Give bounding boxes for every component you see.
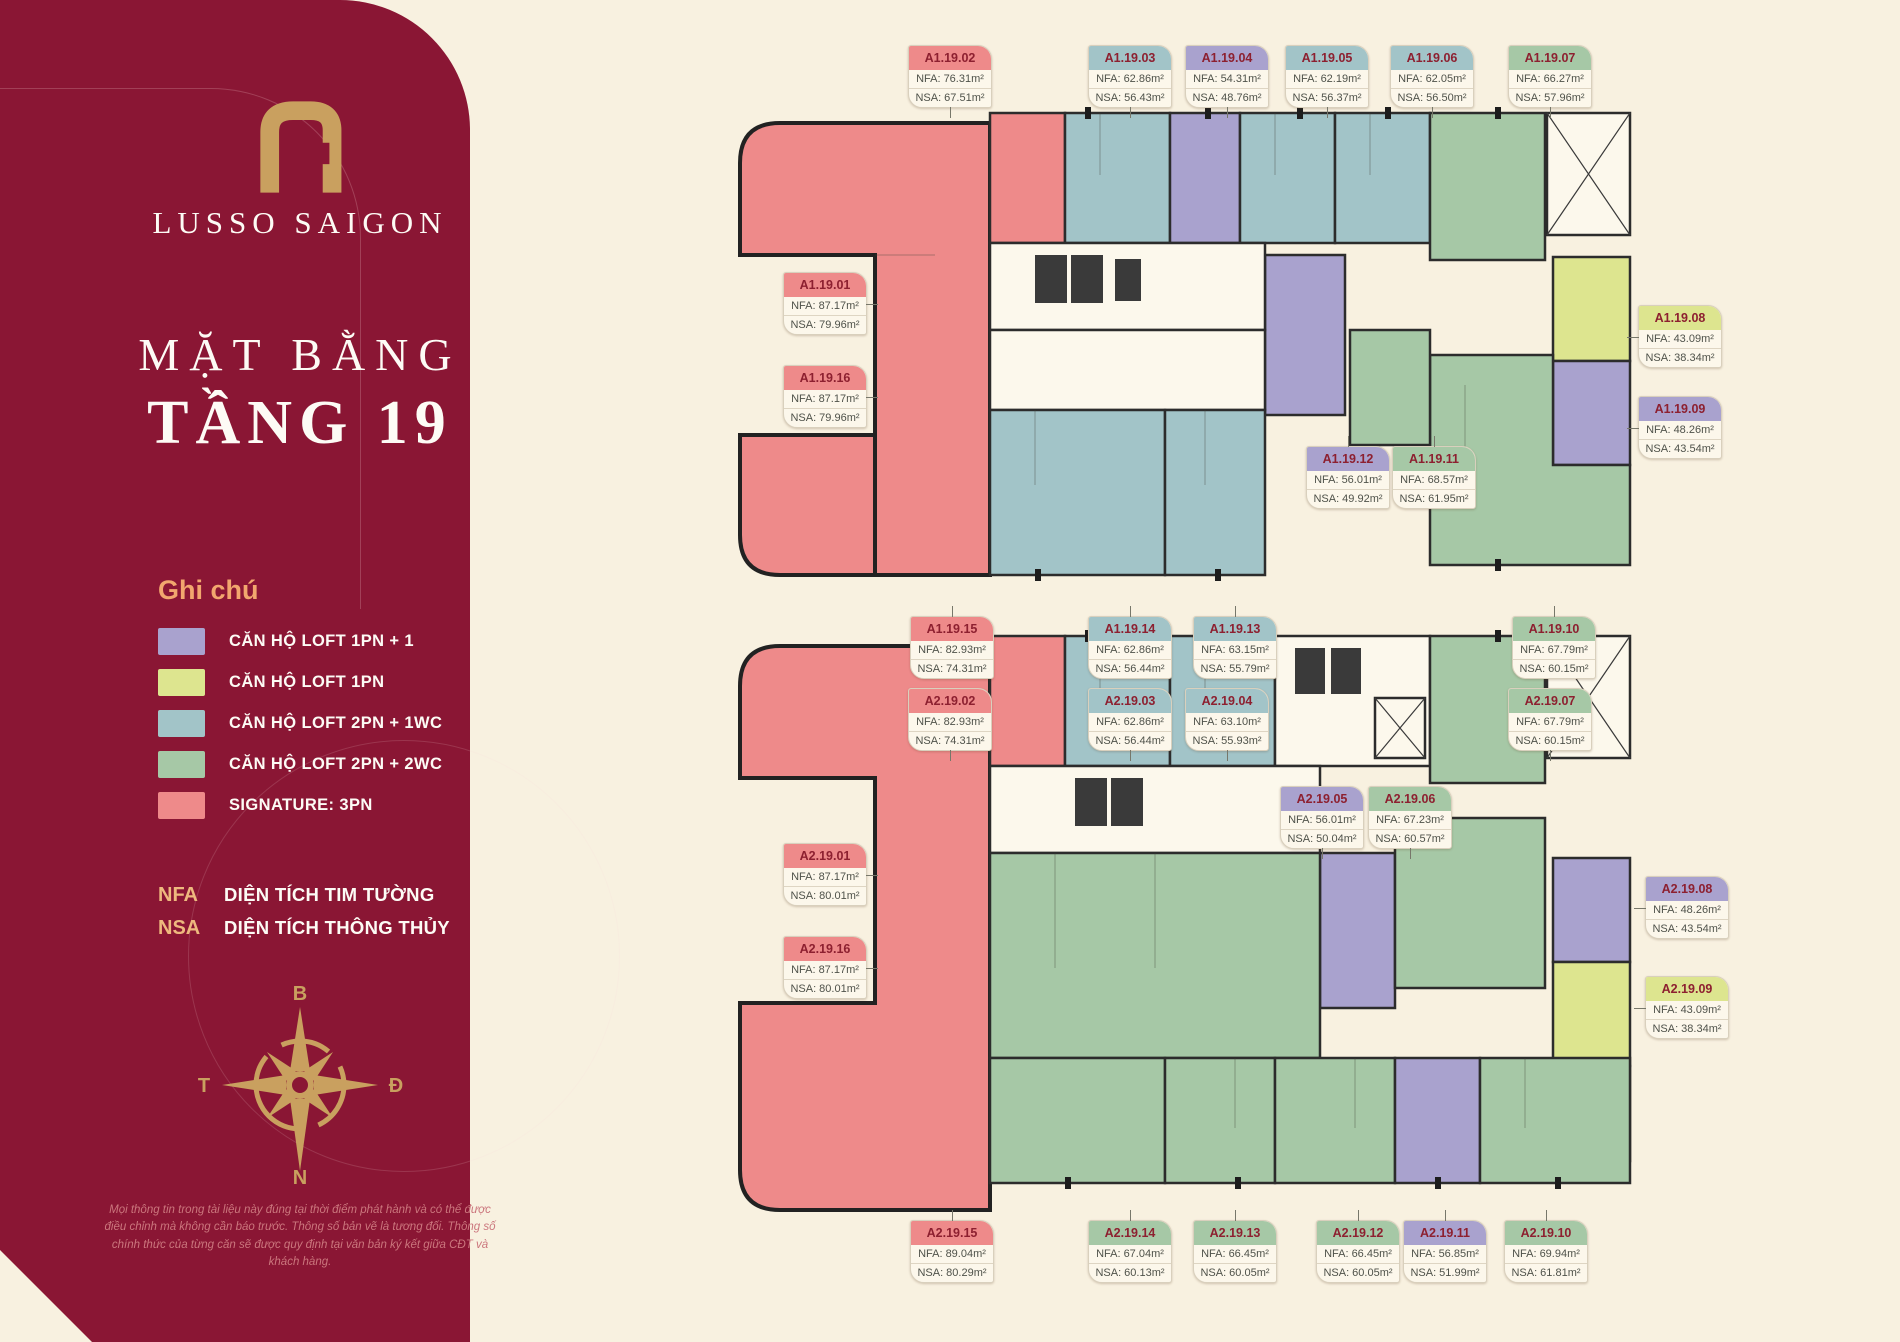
unit-region-A1.19.02 [990,113,1065,243]
page-title-line1: MẶT BẰNG [90,328,510,381]
unit-card-A2.19.11: A2.19.11NFA: 56.85m²NSA: 51.99m² [1403,1220,1487,1283]
unit-card-A2.19.16: A2.19.16NFA: 87.17m²NSA: 80.01m² [783,936,867,999]
unit-nfa: NFA: 56.85m² [1404,1245,1486,1263]
unit-id: A2.19.12 [1317,1221,1399,1245]
unit-nsa: NSA: 56.50m² [1391,88,1473,107]
corridor [990,766,1320,853]
connector-line [1445,1210,1446,1221]
unit-nfa: NFA: 68.57m² [1393,471,1475,489]
abbr-key-nfa: NFA [158,884,210,907]
connector-line [952,1210,953,1221]
unit-id: A2.19.11 [1404,1221,1486,1245]
unit-nfa: NFA: 82.93m² [911,641,993,659]
unit-nsa: NSA: 61.95m² [1393,489,1475,508]
brand-name: LUSSO SAIGON [90,205,510,241]
connector-line [952,606,953,617]
legend-item-loft-1pn: CĂN HỘ LOFT 1PN [158,669,442,696]
connector-line [1235,606,1236,617]
compass: B N T Đ [188,985,412,1185]
unit-card-A2.19.09: A2.19.09NFA: 43.09m²NSA: 38.34m² [1645,976,1729,1039]
unit-region-A1.19.05 [1240,113,1335,243]
unit-card-A2.19.14: A2.19.14NFA: 67.04m²NSA: 60.13m² [1088,1220,1172,1283]
unit-region-A1.19.15 [740,435,875,575]
unit-nsa: NSA: 43.54m² [1646,919,1728,938]
legend-item-loft-1pn-1: CĂN HỘ LOFT 1PN + 1 [158,628,442,655]
unit-nfa: NFA: 56.01m² [1281,811,1363,829]
unit-region-A1.19.09 [1553,361,1630,465]
unit-nfa: NFA: 67.23m² [1369,811,1451,829]
unit-nfa: NFA: 62.86m² [1089,713,1171,731]
unit-nsa: NSA: 38.34m² [1639,348,1721,367]
connector-line [866,968,878,969]
unit-id: A1.19.04 [1186,46,1268,70]
unit-id: A1.19.11 [1393,447,1475,471]
compass-rose-icon: B N T Đ [188,985,412,1185]
connector-line [950,107,951,118]
unit-id: A2.19.01 [784,844,866,868]
unit-id: A2.19.07 [1509,689,1591,713]
unit-nsa: NSA: 60.13m² [1089,1263,1171,1282]
unit-nsa: NSA: 67.51m² [909,88,991,107]
unit-card-A2.19.02: A2.19.02NFA: 82.93m²NSA: 74.31m² [908,688,992,751]
legend-label: CĂN HỘ LOFT 1PN [229,673,384,692]
unit-nsa: NSA: 80.01m² [784,979,866,998]
unit-nsa: NSA: 56.43m² [1089,88,1171,107]
connector-line [1130,107,1131,118]
unit-card-A1.19.16: A1.19.16NFA: 87.17m²NSA: 79.96m² [783,365,867,428]
legend-swatch-teal [158,710,205,737]
unit-id: A1.19.13 [1194,617,1276,641]
unit-nsa: NSA: 60.05m² [1194,1263,1276,1282]
unit-nfa: NFA: 62.19m² [1286,70,1368,88]
unit-card-A1.19.09: A1.19.09NFA: 48.26m²NSA: 43.54m² [1638,396,1722,459]
unit-region-A1.19.13 [1165,410,1265,575]
unit-card-A2.19.04: A2.19.04NFA: 63.10m²NSA: 55.93m² [1185,688,1269,751]
unit-card-A1.19.02: A1.19.02NFA: 76.31m²NSA: 67.51m² [908,45,992,108]
unit-nsa: NSA: 60.57m² [1369,829,1451,848]
connector-line [1550,750,1551,761]
legend-item-loft-2pn-1wc: CĂN HỘ LOFT 2PN + 1WC [158,710,442,737]
lusso-logo-icon [254,100,346,198]
unit-region-A2.19.08 [1553,858,1630,962]
unit-card-A1.19.08: A1.19.08NFA: 43.09m²NSA: 38.34m² [1638,305,1722,368]
unit-region-A2.19.10 [1480,1058,1630,1183]
connector-line [1634,908,1646,909]
unit-nfa: NFA: 67.04m² [1089,1245,1171,1263]
unit-id: A1.19.10 [1513,617,1595,641]
unit-nfa: NFA: 54.31m² [1186,70,1268,88]
unit-id: A1.19.12 [1307,447,1389,471]
unit-card-A1.19.12: A1.19.12NFA: 56.01m²NSA: 49.92m² [1306,446,1390,509]
unit-card-A1.19.15: A1.19.15NFA: 82.93m²NSA: 74.31m² [910,616,994,679]
unit-nfa: NFA: 67.79m² [1513,641,1595,659]
unit-nfa: NFA: 63.10m² [1186,713,1268,731]
unit-nfa: NFA: 66.27m² [1509,70,1591,88]
unit-region-A2.19.09 [1553,962,1630,1066]
legend: Ghi chú CĂN HỘ LOFT 1PN + 1 CĂN HỘ LOFT … [158,575,442,833]
compass-south-label: N [293,1167,307,1185]
unit-id: A2.19.05 [1281,787,1363,811]
unit-nsa: NSA: 60.15m² [1513,659,1595,678]
connector-line [1434,436,1435,447]
connector-line [1327,107,1328,118]
connector-line [950,750,951,761]
connector-line [1227,750,1228,761]
legend-label: SIGNATURE: 3PN [229,796,373,815]
unit-nsa: NSA: 55.93m² [1186,731,1268,750]
unit-card-A1.19.04: A1.19.04NFA: 54.31m²NSA: 48.76m² [1185,45,1269,108]
unit-region-A2.19.14 [990,1058,1165,1183]
unit-nfa: NFA: 43.09m² [1646,1001,1728,1019]
legend-title: Ghi chú [158,575,442,606]
connector-line [1410,848,1411,859]
connector-line [1322,848,1323,859]
unit-nsa: NSA: 60.15m² [1509,731,1591,750]
unit-id: A2.19.09 [1646,977,1728,1001]
unit-region-A2.19.13 [1165,1058,1275,1183]
unit-card-A1.19.07: A1.19.07NFA: 66.27m²NSA: 57.96m² [1508,45,1592,108]
unit-nsa: NSA: 60.05m² [1317,1263,1399,1282]
unit-nsa: NSA: 79.96m² [784,408,866,427]
unit-nsa: NSA: 56.44m² [1089,731,1171,750]
unit-nsa: NSA: 80.01m² [784,886,866,905]
unit-id: A2.19.13 [1194,1221,1276,1245]
unit-region-A2.19.12 [1275,1058,1395,1183]
unit-id: A1.19.05 [1286,46,1368,70]
unit-nfa: NFA: 76.31m² [909,70,991,88]
unit-nsa: NSA: 38.34m² [1646,1019,1728,1038]
unit-id: A1.19.15 [911,617,993,641]
connector-line [1627,337,1639,338]
unit-region-A1.19.11 [1350,330,1430,445]
unit-id: A2.19.16 [784,937,866,961]
unit-nsa: NSA: 50.04m² [1281,829,1363,848]
unit-nfa: NFA: 66.45m² [1194,1245,1276,1263]
unit-card-A2.19.05: A2.19.05NFA: 56.01m²NSA: 50.04m² [1280,786,1364,849]
legend-label: CĂN HỘ LOFT 2PN + 1WC [229,714,442,733]
legend-label: CĂN HỘ LOFT 1PN + 1 [229,632,414,651]
unit-id: A1.19.14 [1089,617,1171,641]
unit-card-A2.19.06: A2.19.06NFA: 67.23m²NSA: 60.57m² [1368,786,1452,849]
unit-card-A2.19.07: A2.19.07NFA: 67.79m²NSA: 60.15m² [1508,688,1592,751]
connector-line [1358,1210,1359,1221]
unit-nfa: NFA: 63.15m² [1194,641,1276,659]
unit-nfa: NFA: 43.09m² [1639,330,1721,348]
unit-id: A2.19.06 [1369,787,1451,811]
compass-north-label: B [293,985,307,1005]
unit-id: A1.19.02 [909,46,991,70]
abbr-text-nsa: DIỆN TÍCH THÔNG THỦY [224,917,450,939]
unit-nfa: NFA: 87.17m² [784,961,866,979]
connector-line [1227,107,1228,118]
unit-nfa: NFA: 69.94m² [1505,1245,1587,1263]
unit-id: A2.19.02 [909,689,991,713]
unit-card-A1.19.13: A1.19.13NFA: 63.15m²NSA: 55.79m² [1193,616,1277,679]
connector-line [1627,428,1639,429]
unit-nfa: NFA: 62.86m² [1089,641,1171,659]
unit-region-A1.19.07 [1430,113,1545,260]
unit-nfa: NFA: 56.01m² [1307,471,1389,489]
unit-nsa: NSA: 79.96m² [784,315,866,334]
unit-id: A1.19.09 [1639,397,1721,421]
logo-wrap [90,100,510,203]
unit-card-A2.19.10: A2.19.10NFA: 69.94m²NSA: 61.81m² [1504,1220,1588,1283]
unit-nfa: NFA: 48.26m² [1646,901,1728,919]
unit-region-A2.19.05 [1320,853,1395,1008]
compass-west-label: T [198,1075,210,1097]
unit-card-A1.19.14: A1.19.14NFA: 62.86m²NSA: 56.44m² [1088,616,1172,679]
legend-swatch-red [158,792,205,819]
unit-region-A1.19.12 [1265,255,1345,415]
connector-line [866,875,878,876]
unit-card-A1.19.05: A1.19.05NFA: 62.19m²NSA: 56.37m² [1285,45,1369,108]
unit-card-A2.19.12: A2.19.12NFA: 66.45m²NSA: 60.05m² [1316,1220,1400,1283]
unit-id: A1.19.01 [784,273,866,297]
unit-nsa: NSA: 55.79m² [1194,659,1276,678]
unit-nsa: NSA: 48.76m² [1186,88,1268,107]
unit-card-A2.19.15: A2.19.15NFA: 89.04m²NSA: 80.29m² [910,1220,994,1283]
legend-swatch-green [158,751,205,778]
unit-nfa: NFA: 87.17m² [784,868,866,886]
abbr-text-nfa: DIỆN TÍCH TIM TƯỜNG [224,884,435,906]
legend-item-signature-3pn: SIGNATURE: 3PN [158,792,442,819]
unit-nfa: NFA: 87.17m² [784,297,866,315]
connector-line [866,397,878,398]
connector-line [1432,107,1433,118]
unit-nfa: NFA: 87.17m² [784,390,866,408]
unit-nfa: NFA: 89.04m² [911,1245,993,1263]
unit-id: A2.19.08 [1646,877,1728,901]
unit-nsa: NSA: 56.37m² [1286,88,1368,107]
unit-id: A1.19.08 [1639,306,1721,330]
legend-swatch-purple [158,628,205,655]
connector-line [866,304,878,305]
unit-nsa: NSA: 61.81m² [1505,1263,1587,1282]
unit-region-A2.19.11 [1395,1058,1480,1183]
brand-panel: LUSSO SAIGON MẶT BẰNG TẦNG 19 Ghi chú CĂ… [0,0,470,1342]
unit-region-A1.19.03 [1065,113,1170,243]
legend-swatch-yellowgreen [158,669,205,696]
unit-card-A2.19.03: A2.19.03NFA: 62.86m²NSA: 56.44m² [1088,688,1172,751]
unit-nsa: NSA: 51.99m² [1404,1263,1486,1282]
unit-region-A2.19.02 [990,636,1065,766]
tower1-floor-plan [735,105,1635,605]
abbr-nfa: NFA DIỆN TÍCH TIM TƯỜNG [158,884,450,907]
unit-nsa: NSA: 74.31m² [911,659,993,678]
page-title-line2: TẦNG 19 [90,388,510,459]
connector-line [1546,1210,1547,1221]
unit-id: A1.19.16 [784,366,866,390]
unit-nfa: NFA: 82.93m² [909,713,991,731]
abbr-key-nsa: NSA [158,917,210,940]
unit-id: A2.19.15 [911,1221,993,1245]
unit-id: A2.19.03 [1089,689,1171,713]
compass-east-label: Đ [389,1075,403,1097]
unit-card-A1.19.06: A1.19.06NFA: 62.05m²NSA: 56.50m² [1390,45,1474,108]
unit-nfa: NFA: 67.79m² [1509,713,1591,731]
unit-card-A2.19.08: A2.19.08NFA: 48.26m²NSA: 43.54m² [1645,876,1729,939]
unit-id: A1.19.07 [1509,46,1591,70]
connector-line [1235,1210,1236,1221]
unit-id: A1.19.03 [1089,46,1171,70]
unit-id: A2.19.14 [1089,1221,1171,1245]
connector-line [1550,107,1551,118]
legend-item-loft-2pn-2wc: CĂN HỘ LOFT 2PN + 2WC [158,751,442,778]
unit-card-A2.19.13: A2.19.13NFA: 66.45m²NSA: 60.05m² [1193,1220,1277,1283]
unit-card-A1.19.11: A1.19.11NFA: 68.57m²NSA: 61.95m² [1392,446,1476,509]
panel-corner-notch [0,1250,92,1342]
unit-region-A1.19.06 [1335,113,1430,243]
unit-card-A1.19.01: A1.19.01NFA: 87.17m²NSA: 79.96m² [783,272,867,335]
unit-nsa: NSA: 43.54m² [1639,439,1721,458]
connector-line [1348,436,1349,447]
unit-card-A1.19.10: A1.19.10NFA: 67.79m²NSA: 60.15m² [1512,616,1596,679]
unit-nsa: NSA: 74.31m² [909,731,991,750]
unit-region-A1.19.14 [990,410,1165,575]
unit-nsa: NSA: 57.96m² [1509,88,1591,107]
disclaimer-text: Mọi thông tin trong tài liệu này đúng tạ… [103,1202,497,1271]
connector-line [1554,606,1555,617]
unit-nfa: NFA: 66.45m² [1317,1245,1399,1263]
abbr-nsa: NSA DIỆN TÍCH THÔNG THỦY [158,917,450,940]
unit-id: A1.19.06 [1391,46,1473,70]
unit-card-A2.19.01: A2.19.01NFA: 87.17m²NSA: 80.01m² [783,843,867,906]
connector-line [1130,1210,1131,1221]
unit-region-A1.19.04 [1170,113,1240,243]
connector-line [1634,1008,1646,1009]
connector-line [1130,606,1131,617]
unit-card-A1.19.03: A1.19.03NFA: 62.86m²NSA: 56.43m² [1088,45,1172,108]
abbreviations: NFA DIỆN TÍCH TIM TƯỜNG NSA DIỆN TÍCH TH… [158,884,450,950]
unit-region-A1.19.08 [1553,257,1630,361]
unit-nfa: NFA: 48.26m² [1639,421,1721,439]
unit-nsa: NSA: 56.44m² [1089,659,1171,678]
unit-nsa: NSA: 80.29m² [911,1263,993,1282]
unit-nsa: NSA: 49.92m² [1307,489,1389,508]
legend-label: CĂN HỘ LOFT 2PN + 2WC [229,755,442,774]
unit-id: A2.19.10 [1505,1221,1587,1245]
corridor [990,330,1265,410]
unit-nfa: NFA: 62.05m² [1391,70,1473,88]
unit-nfa: NFA: 62.86m² [1089,70,1171,88]
connector-line [1130,750,1131,761]
unit-id: A2.19.04 [1186,689,1268,713]
